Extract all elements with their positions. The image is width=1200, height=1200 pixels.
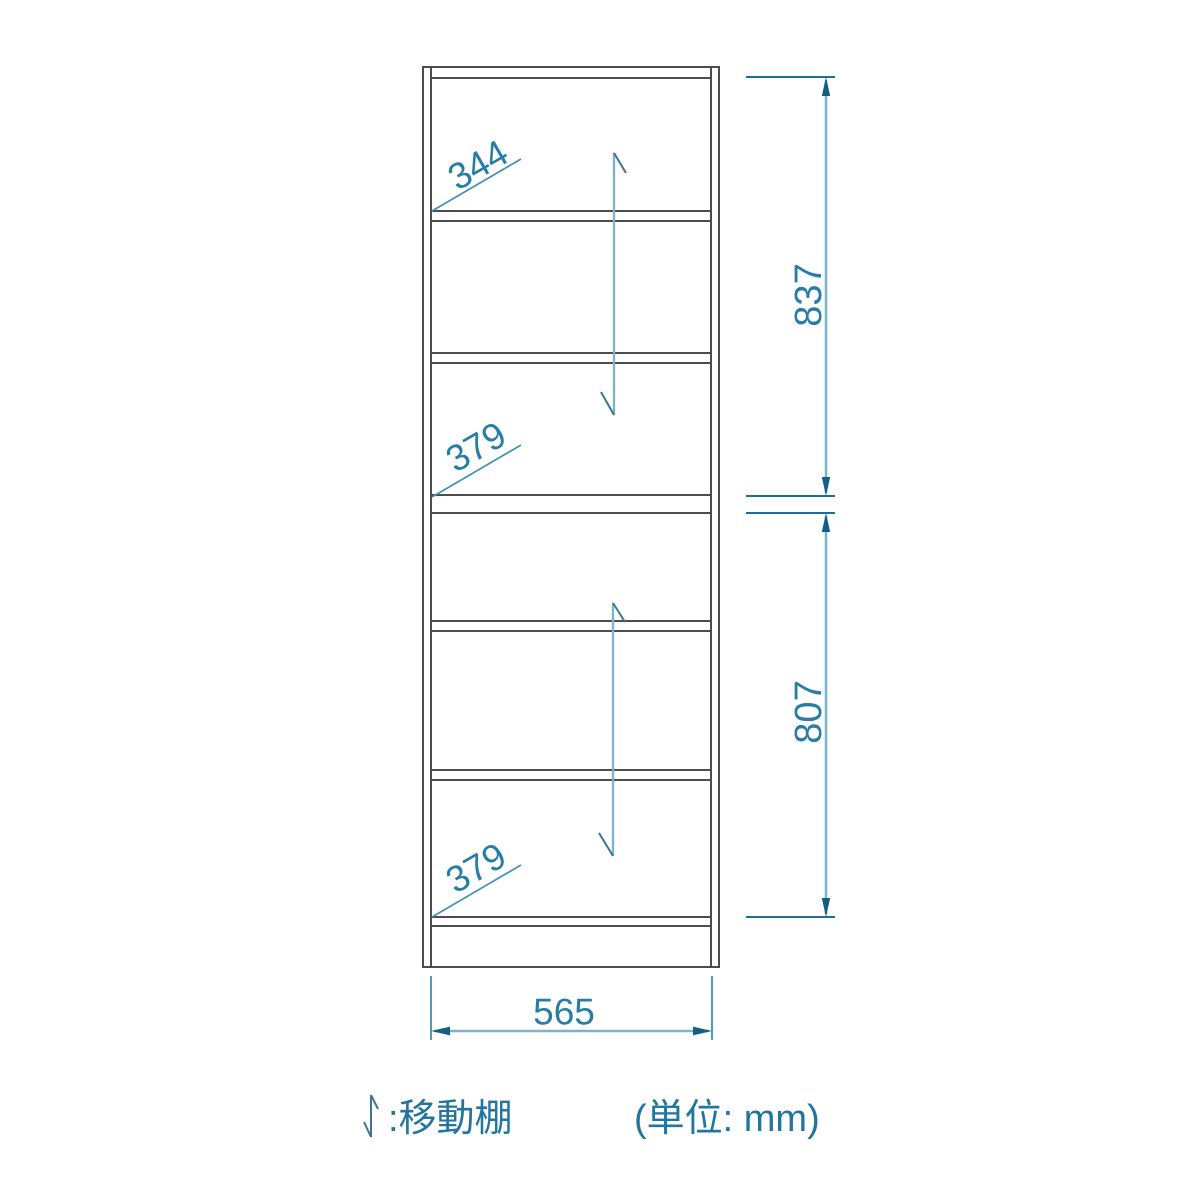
label-inner-width: 565 xyxy=(533,992,595,1033)
lower-arrow-bottom-tick xyxy=(599,833,613,856)
middle-fixed-shelf xyxy=(431,495,711,513)
unit-note: (単位: mm) xyxy=(634,1098,820,1140)
shelf-1-movable xyxy=(431,211,711,221)
label-upper-height: 837 xyxy=(788,263,830,326)
shelf-pitch-labels: 344 379 379 xyxy=(432,132,521,917)
width-dimension: 565 xyxy=(431,976,712,1040)
legend-label: :移動棚 xyxy=(388,1098,513,1140)
height-extension-lines xyxy=(746,77,835,917)
label-lower-shelf-pitch: 379 xyxy=(439,835,513,901)
shelf-2-movable xyxy=(431,353,711,363)
furniture-dimension-diagram: 837 807 565 344 379 379 xyxy=(0,0,1200,1200)
arrow-up-807 xyxy=(822,513,830,532)
cabinet-outer-frame xyxy=(423,67,719,967)
cabinet-front-view xyxy=(423,67,719,967)
legend: :移動棚 (単位: mm) xyxy=(364,1095,820,1140)
arrow-down-807 xyxy=(822,898,830,917)
movable-shelf-icon xyxy=(364,1095,378,1137)
shelf-3-movable xyxy=(431,621,711,631)
label-upper-shelf-pitch: 379 xyxy=(439,414,513,480)
upper-arrow-top-tick xyxy=(614,153,626,173)
legend-arrow-bottom-tick xyxy=(364,1122,371,1137)
height-dimensions: 837 807 xyxy=(746,77,835,917)
shelf-4-movable xyxy=(431,770,711,780)
label-top-shelf-pitch: 344 xyxy=(441,132,515,198)
lower-arrow-top-tick xyxy=(613,603,625,622)
upper-arrow-bottom-tick xyxy=(601,392,614,415)
movable-shelf-arrow-lower xyxy=(599,603,625,856)
arrow-right-565 xyxy=(693,1027,712,1036)
label-lower-height: 807 xyxy=(788,680,830,743)
movable-shelf-arrow-upper xyxy=(601,153,626,415)
legend-arrow-top-tick xyxy=(371,1095,378,1109)
arrow-left-565 xyxy=(431,1027,450,1036)
arrow-up-837 xyxy=(822,77,830,96)
bottom-panel xyxy=(431,917,711,926)
diagram-svg: 837 807 565 344 379 379 xyxy=(0,0,1200,1200)
arrow-down-837 xyxy=(822,477,830,496)
